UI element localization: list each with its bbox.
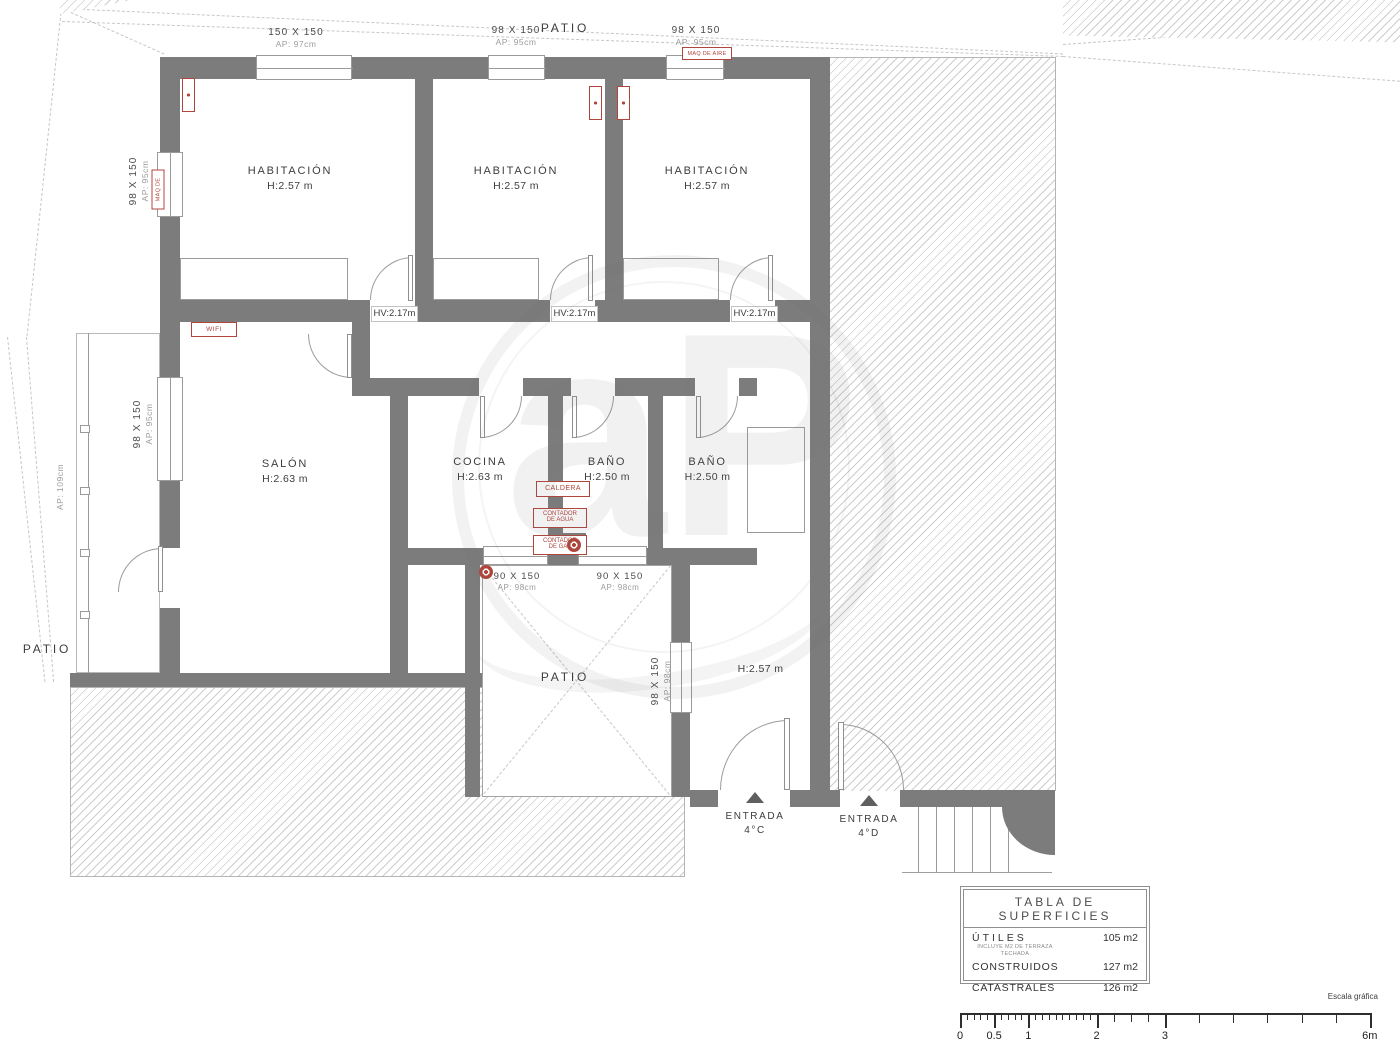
- wall: [830, 790, 840, 807]
- window: [256, 55, 352, 80]
- meter-icon: [567, 538, 581, 552]
- wall: [690, 548, 757, 565]
- door-leaf: [572, 396, 577, 438]
- window-ap: AP: 95cm: [466, 37, 566, 47]
- scale-tick-major: [1097, 1013, 1099, 1028]
- scale-bar: Escala gráfica 00.51236m: [958, 992, 1382, 1042]
- row-value: 127 m2: [1103, 961, 1138, 973]
- wall: [70, 673, 482, 687]
- dashed-boundary-line: [27, 8, 62, 336]
- patio-left-label: PATIO: [12, 642, 82, 656]
- floorplan-canvas: MAQ DE AIRE MAQ DE AIRE WIFI CALDERA CON…: [0, 0, 1400, 1043]
- wall: [415, 79, 433, 322]
- wardrobe: [433, 258, 539, 300]
- window-dim-patio-1: 90 X 150 AP: 98cm: [478, 571, 556, 592]
- scale-tick-major: [960, 1013, 962, 1028]
- door-leaf: [347, 334, 352, 378]
- wall: [180, 300, 810, 322]
- scale-tick: [1083, 1013, 1084, 1020]
- wifi-label: WIFI: [191, 322, 237, 337]
- scale-tick: [974, 1013, 975, 1020]
- passage-opening: [757, 378, 810, 396]
- window-ap: AP: 98cm: [478, 583, 556, 592]
- door-arc: [480, 396, 522, 438]
- entrance-door-leaf-4d: [838, 722, 844, 790]
- window-size: 98 X 150: [650, 641, 661, 721]
- window-size: 98 X 150: [128, 141, 139, 221]
- door-height-chip: HV:2.17m: [551, 306, 598, 322]
- table-row: ÚTILES INCLUYE M2 DE TERRAZA TECHADA 105…: [972, 932, 1138, 958]
- wardrobe: [180, 258, 348, 300]
- stair-tread: [936, 807, 937, 873]
- scale-tick: [1233, 1013, 1234, 1023]
- dashed-boundary-line: [62, 8, 165, 54]
- window-size: 98 X 150: [646, 25, 746, 36]
- door-arc: [550, 257, 593, 300]
- window-dim-left-2: 98 X 150 AP: 95cm: [132, 384, 154, 464]
- room-height: H:2.50 m: [655, 471, 760, 483]
- wall: [390, 396, 408, 673]
- window-ap: AP: 98cm: [580, 583, 660, 592]
- entrance-door-arc-4c: [720, 720, 788, 790]
- door-arc: [370, 257, 413, 300]
- door-height-chip: HV:2.17m: [371, 306, 418, 322]
- room-name: BAÑO: [655, 456, 760, 468]
- entrance-label-4d: ENTRADA 4°D: [827, 813, 911, 841]
- room-height: H:2.63 m: [200, 473, 370, 485]
- window-size: 150 X 150: [246, 27, 346, 38]
- patio-courtyard-label: PATIO: [505, 670, 625, 684]
- entrance-arrow-4c: [746, 792, 764, 803]
- room-height: H:2.50 m: [557, 471, 657, 483]
- scale-tick: [1076, 1013, 1077, 1020]
- table-row: CONSTRUIDOS 127 m2: [972, 961, 1138, 973]
- door-arc: [696, 396, 738, 438]
- window-size: 90 X 150: [580, 571, 660, 582]
- stair-tread: [990, 807, 991, 873]
- entrance-door-leaf-4c: [784, 718, 790, 790]
- wall: [810, 57, 830, 807]
- scale-label: 0.5: [986, 1030, 1001, 1042]
- window-dim-top-1: 150 X 150 AP: 97cm: [246, 27, 346, 49]
- terrace-mullion: [80, 487, 90, 495]
- scale-tick: [1302, 1013, 1303, 1023]
- wardrobe: [623, 258, 719, 300]
- room-height: H:2.57 m: [622, 180, 792, 192]
- room-name: HABITACIÓN: [205, 165, 375, 177]
- window-ap: AP: 95cm: [144, 384, 154, 464]
- window-size: 98 X 150: [132, 384, 143, 464]
- terrace-glazing-line: [88, 333, 89, 673]
- window-size: 98 X 150: [466, 25, 566, 36]
- scale-tick: [1001, 1013, 1002, 1020]
- scale-tick: [1015, 1013, 1016, 1020]
- window-dim-top-2: 98 X 150 AP: 95cm: [466, 25, 566, 47]
- scale-tick: [1021, 1013, 1022, 1020]
- entrance-unit: 4°D: [827, 827, 911, 841]
- water-meter-label: CONTADOR DE AGUA: [533, 508, 587, 528]
- window: [488, 55, 545, 80]
- room-label-bano-2: BAÑO H:2.50 m: [655, 456, 760, 483]
- scale-tick: [1008, 1013, 1009, 1020]
- room-label-habitacion-1: HABITACIÓN H:2.57 m: [205, 165, 375, 192]
- window-dim-left-1: 98 X 150 AP: 95cm: [128, 141, 150, 221]
- door-arc: [730, 257, 773, 300]
- scale-tick: [1056, 1013, 1057, 1020]
- ac-unit-label: MAQ DE AIRE: [152, 170, 165, 210]
- door-opening: [571, 378, 615, 396]
- window-mullion: [170, 153, 171, 216]
- boiler-label: CALDERA: [536, 481, 590, 497]
- entrance-label-4c: ENTRADA 4°C: [713, 810, 797, 838]
- window-ap: AP: 97cm: [246, 39, 346, 49]
- scale-tick: [1131, 1013, 1132, 1022]
- room-label-habitacion-3: HABITACIÓN H:2.57 m: [622, 165, 792, 192]
- window-dim-patio-2: 90 X 150 AP: 98cm: [580, 571, 660, 592]
- door-arc: [572, 396, 614, 438]
- scale-tick-major: [1028, 1013, 1030, 1028]
- row-value: 105 m2: [1103, 932, 1138, 944]
- entrance-word: ENTRADA: [827, 813, 911, 827]
- window-ap: AP: 95cm: [140, 141, 150, 221]
- scale-tick: [1042, 1013, 1043, 1020]
- scale-bar-ticks: 00.51236m: [958, 992, 1382, 1042]
- door-height-chip: HV:2.17m: [731, 306, 778, 322]
- window-mullion: [667, 68, 725, 69]
- stair-tread: [972, 807, 973, 873]
- window-dim-top-3: 98 X 150 AP: 95cm: [646, 25, 746, 47]
- scale-tick: [967, 1013, 968, 1020]
- room-label-bano-1: BAÑO H:2.50 m: [557, 456, 657, 483]
- scale-tick: [1199, 1013, 1200, 1023]
- terrace-mullion: [80, 425, 90, 433]
- entrance-arrow-4d: [860, 795, 878, 806]
- dashed-boundary-line: [1063, 56, 1400, 82]
- scale-tick-major: [1165, 1013, 1167, 1028]
- radiator-marker: [617, 86, 630, 120]
- window-dim-patio-right: 98 X 150 AP: 98cm: [650, 641, 672, 721]
- window-mullion: [484, 556, 547, 557]
- hatch-neighbour-right: [830, 57, 1056, 791]
- room-name: SALÓN: [200, 458, 370, 470]
- scale-label: 3: [1162, 1030, 1168, 1042]
- terrace-ap-label: AP: 109cm: [55, 452, 65, 522]
- room-height: H:2.57 m: [205, 180, 375, 192]
- row-note: INCLUYE M2 DE TERRAZA TECHADA: [972, 944, 1058, 958]
- scale-tick: [1336, 1013, 1337, 1023]
- door-leaf: [768, 255, 773, 301]
- scale-label: 6m: [1362, 1030, 1377, 1042]
- wall: [900, 790, 1055, 807]
- window-size: 90 X 150: [478, 571, 556, 582]
- door-leaf: [588, 255, 593, 301]
- scale-tick: [980, 1013, 981, 1020]
- surface-table-inner: TABLA DE SUPERFICIES ÚTILES INCLUYE M2 D…: [963, 889, 1147, 981]
- stair-tread: [954, 807, 955, 873]
- entrance-unit: 4°C: [713, 824, 797, 838]
- window: [157, 377, 183, 481]
- window-ap: AP: 95cm: [646, 37, 746, 47]
- terrace-mullion: [80, 611, 90, 619]
- scale-label: 1: [1025, 1030, 1031, 1042]
- scale-tick: [1062, 1013, 1063, 1020]
- window-mullion: [681, 643, 682, 712]
- room-name: BAÑO: [557, 456, 657, 468]
- scale-tick: [1267, 1013, 1268, 1023]
- scale-tick: [1049, 1013, 1050, 1020]
- scale-label: 0: [957, 1030, 963, 1042]
- scale-tick-major: [994, 1013, 996, 1028]
- stair-tread: [918, 807, 919, 873]
- scale-tick: [1090, 1013, 1091, 1020]
- room-name: COCINA: [395, 456, 565, 468]
- room-label-salon: SALÓN H:2.63 m: [200, 458, 370, 485]
- door-arc: [308, 334, 352, 378]
- room-name: HABITACIÓN: [622, 165, 792, 177]
- terrace-mullion: [80, 549, 90, 557]
- scale-tick: [1035, 1013, 1036, 1020]
- room-name: HABITACIÓN: [431, 165, 601, 177]
- row-label: ÚTILES: [972, 932, 1058, 944]
- surface-table-title: TABLA DE SUPERFICIES: [964, 890, 1146, 928]
- room-label-cocina: COCINA H:2.63 m: [395, 456, 565, 483]
- door-opening: [160, 548, 180, 608]
- entrance-word: ENTRADA: [713, 810, 797, 824]
- scale-tick: [1148, 1013, 1149, 1022]
- window-ap: AP: 109cm: [55, 452, 65, 522]
- scale-tick: [1114, 1013, 1115, 1022]
- window-mullion: [579, 556, 646, 557]
- dashed-boundary-line: [26, 337, 54, 682]
- window-mullion: [257, 68, 353, 69]
- surface-table: TABLA DE SUPERFICIES ÚTILES INCLUYE M2 D…: [960, 886, 1150, 984]
- scale-tick: [1069, 1013, 1070, 1020]
- ac-unit-label: MAQ DE AIRE: [682, 47, 732, 60]
- door-opening: [479, 378, 523, 396]
- row-label-wrap: ÚTILES INCLUYE M2 DE TERRAZA TECHADA: [972, 932, 1058, 958]
- surface-table-rows: ÚTILES INCLUYE M2 DE TERRAZA TECHADA 105…: [964, 928, 1146, 994]
- radiator-marker: [589, 86, 602, 120]
- room-height: H:2.63 m: [395, 471, 565, 483]
- window-ap: AP: 98cm: [662, 641, 672, 721]
- door-leaf: [480, 396, 485, 438]
- radiator-marker: [182, 78, 195, 112]
- room-label-habitacion-2: HABITACIÓN H:2.57 m: [431, 165, 601, 192]
- room-height: H:2.57 m: [431, 180, 601, 192]
- window: [578, 546, 647, 565]
- window-mullion: [489, 68, 546, 69]
- door-leaf: [158, 546, 163, 592]
- hall-height-label: H:2.57 m: [708, 663, 813, 675]
- row-label: CONSTRUIDOS: [972, 961, 1058, 973]
- scale-tick-major: [1370, 1013, 1372, 1028]
- door-leaf: [696, 396, 701, 438]
- scale-label: 2: [1094, 1030, 1100, 1042]
- room-height: H:2.57 m: [708, 663, 813, 675]
- window: [670, 642, 692, 713]
- scale-tick: [987, 1013, 988, 1020]
- window-mullion: [170, 378, 171, 480]
- door-opening: [695, 378, 739, 396]
- water-meter-label-line2: DE AGUA: [534, 517, 586, 523]
- door-leaf: [408, 255, 413, 301]
